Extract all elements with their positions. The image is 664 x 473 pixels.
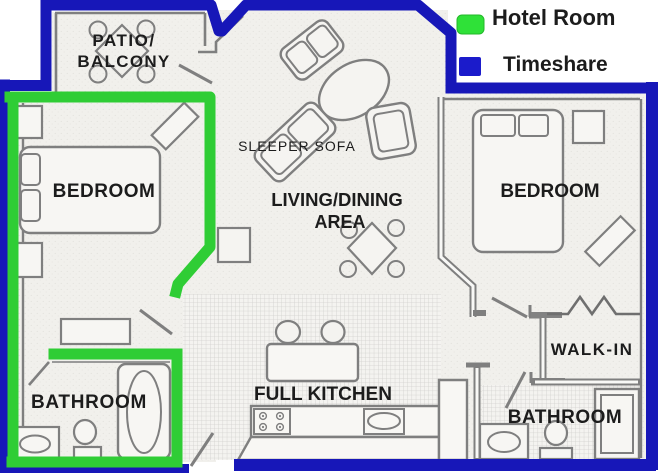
svg-text:BEDROOM: BEDROOM [500, 181, 599, 202]
svg-text:BATHROOM: BATHROOM [31, 392, 147, 413]
svg-text:WALK-IN: WALK-IN [551, 340, 634, 359]
svg-text:PATIO/: PATIO/ [92, 31, 155, 50]
svg-text:BATHROOM: BATHROOM [508, 407, 622, 428]
svg-text:BALCONY: BALCONY [77, 52, 170, 71]
svg-text:FULL KITCHEN: FULL KITCHEN [254, 384, 392, 405]
svg-text:SLEEPER SOFA: SLEEPER SOFA [238, 138, 356, 154]
svg-text:Hotel Room: Hotel Room [492, 5, 615, 30]
svg-text:BEDROOM: BEDROOM [53, 181, 156, 202]
svg-text:Timeshare: Timeshare [503, 53, 608, 76]
svg-text:LIVING/DINING: LIVING/DINING [271, 189, 403, 210]
svg-text:AREA: AREA [314, 212, 365, 232]
